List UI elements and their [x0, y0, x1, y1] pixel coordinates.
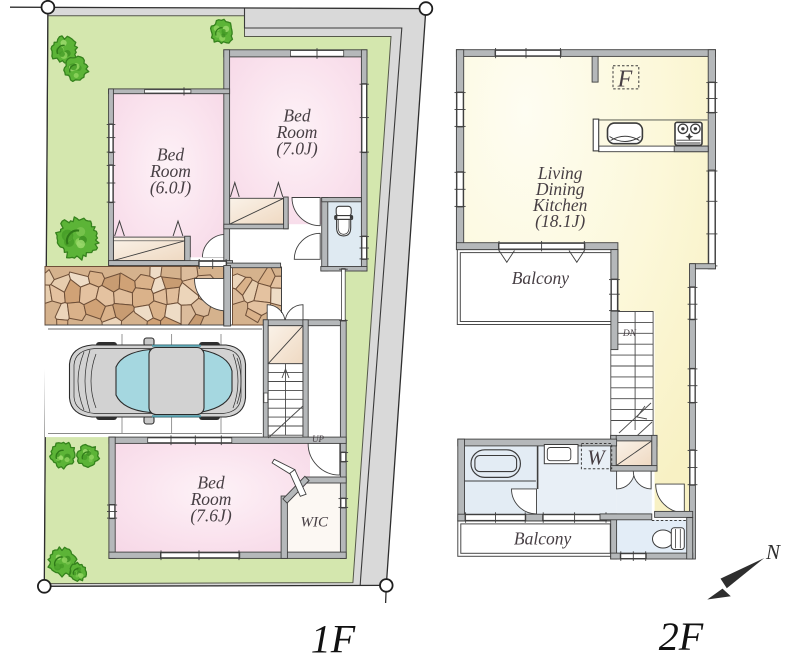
svg-text:(7.0J): (7.0J) [276, 139, 317, 159]
svg-text:(6.0J): (6.0J) [150, 178, 191, 198]
svg-text:(7.6J): (7.6J) [190, 506, 231, 526]
svg-text:Balcony: Balcony [512, 268, 570, 288]
svg-text:WIC: WIC [301, 515, 329, 531]
svg-text:Balcony: Balcony [514, 529, 572, 549]
svg-text:DN: DN [622, 329, 637, 339]
svg-text:2F: 2F [659, 614, 704, 659]
svg-text:W: W [587, 446, 607, 470]
svg-text:(18.1J): (18.1J) [535, 211, 585, 231]
svg-text:F: F [617, 67, 633, 93]
svg-text:1F: 1F [311, 617, 356, 662]
svg-text:UP: UP [312, 434, 324, 444]
svg-text:N: N [765, 540, 781, 564]
